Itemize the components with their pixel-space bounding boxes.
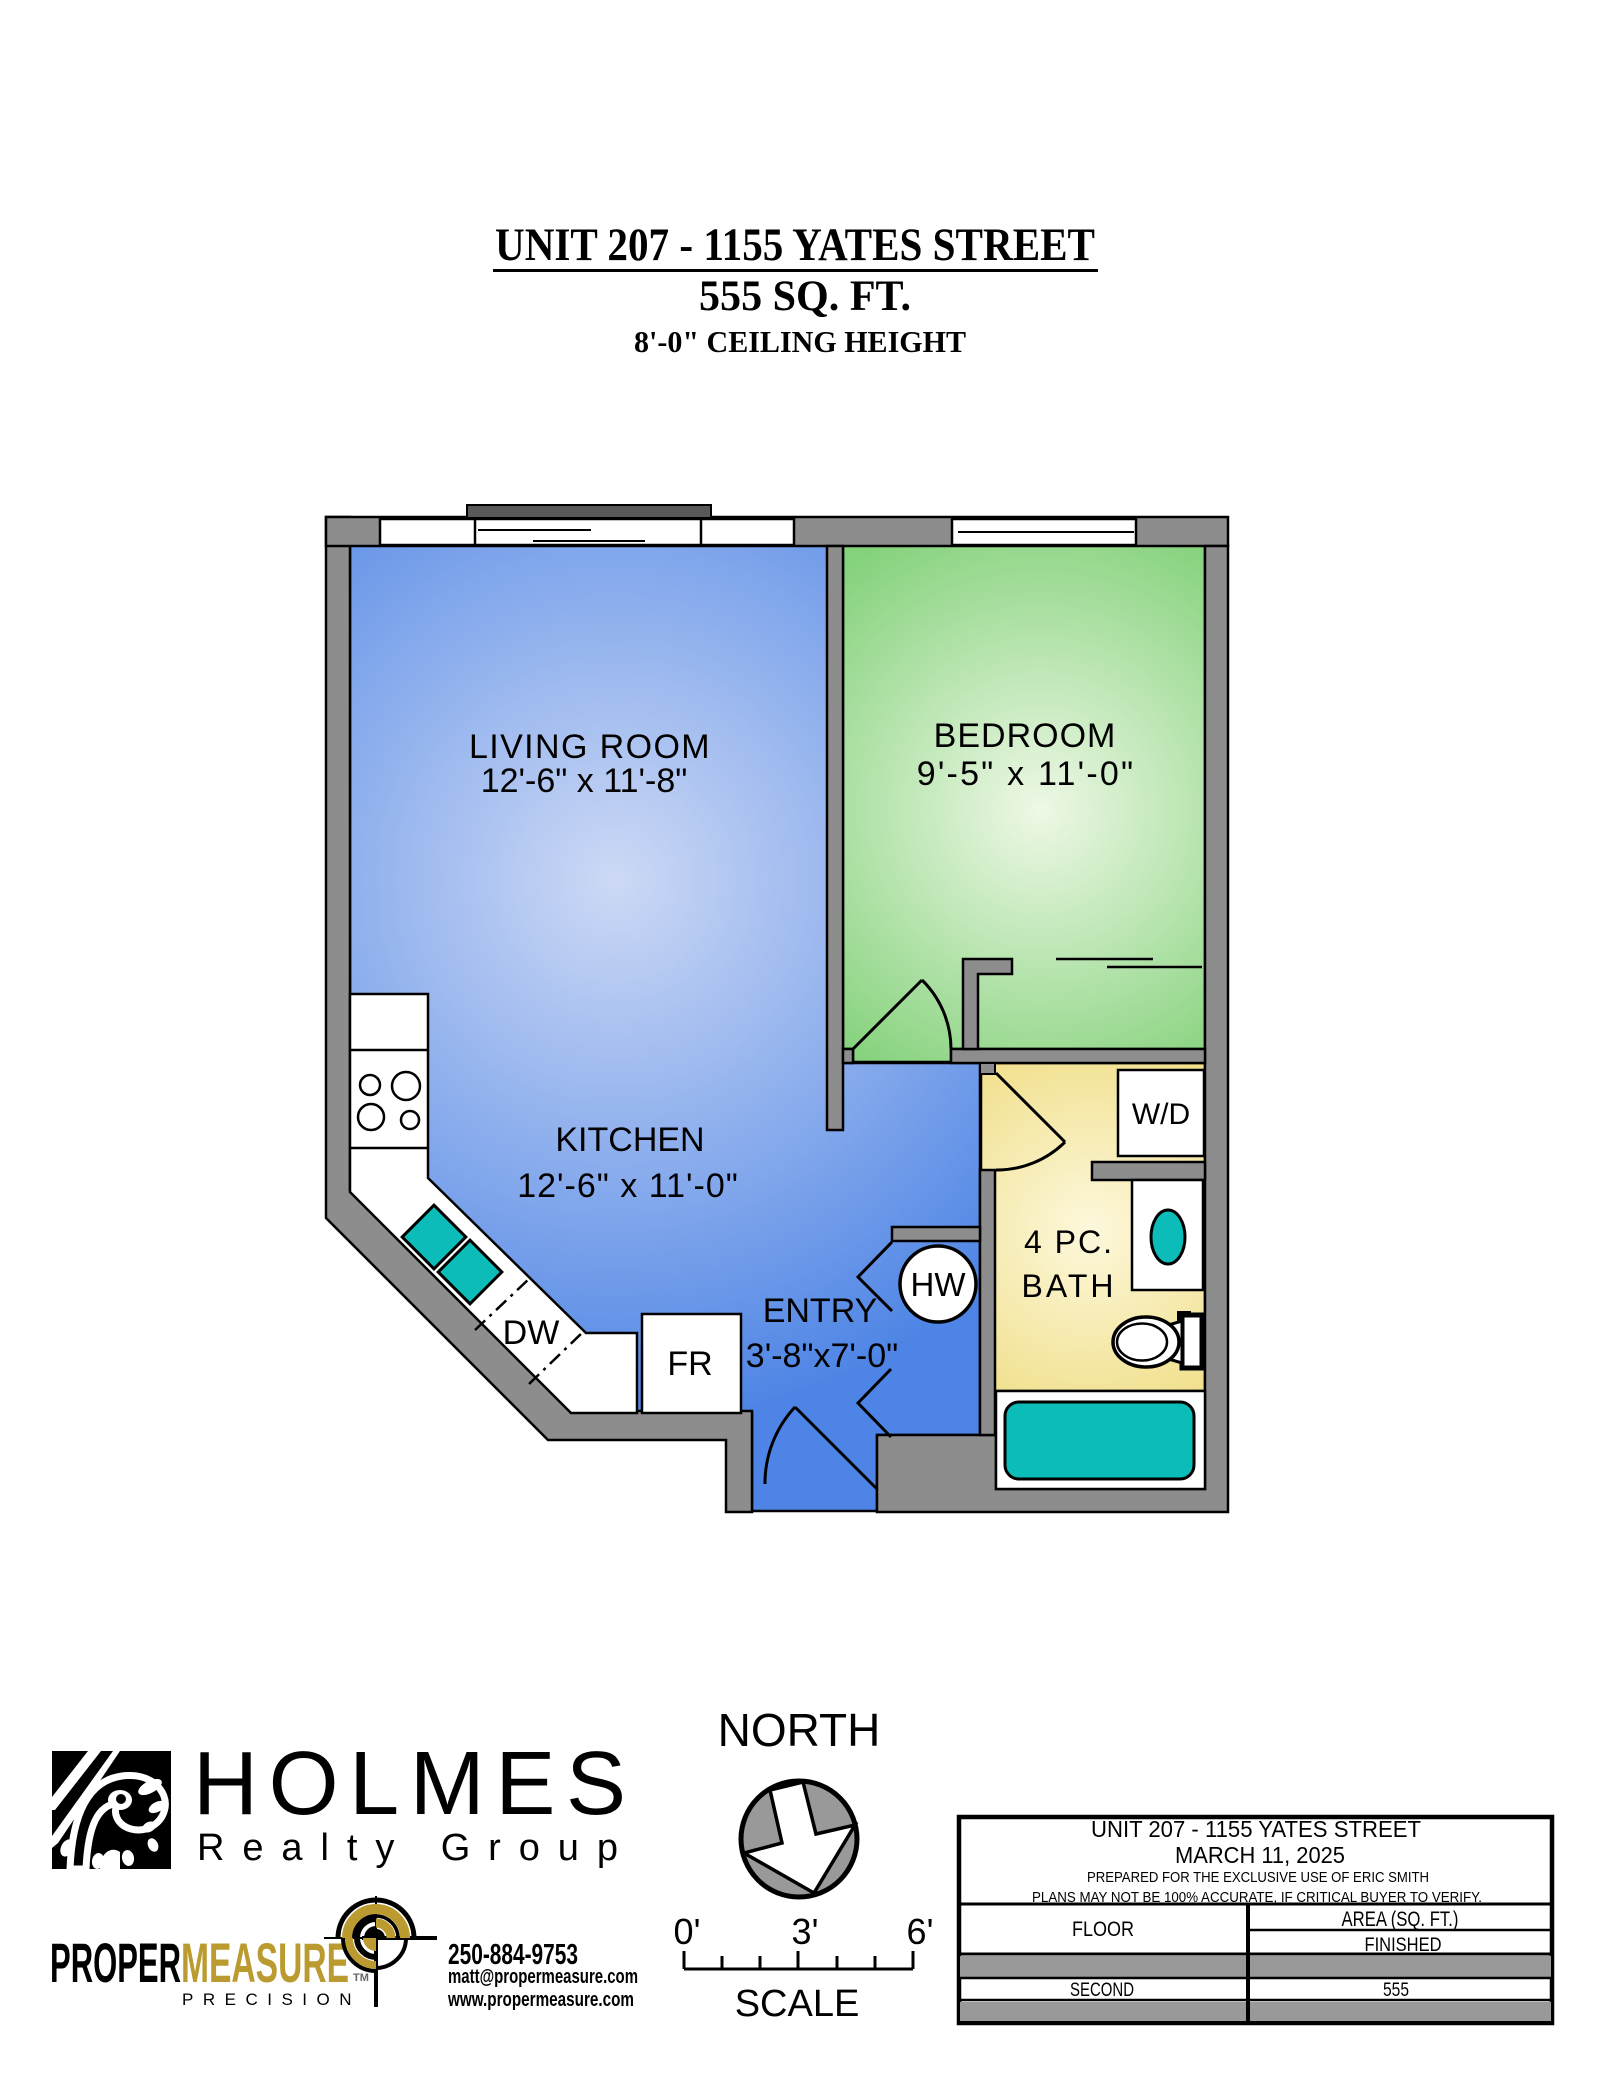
svg-text:W/D: W/D (1132, 1098, 1190, 1131)
svg-text:DW: DW (503, 1314, 560, 1352)
svg-text:SECOND: SECOND (1070, 1979, 1134, 2001)
svg-text:NORTH: NORTH (718, 1704, 881, 1756)
svg-text:KITCHEN: KITCHEN (555, 1121, 704, 1159)
svg-text:BEDROOM: BEDROOM (934, 717, 1117, 755)
svg-text:555: 555 (1383, 1979, 1409, 2001)
svg-text:0': 0' (674, 1911, 701, 1952)
svg-text:3': 3' (792, 1911, 819, 1952)
svg-text:MARCH 11, 2025: MARCH 11, 2025 (1175, 1842, 1345, 1868)
svg-text:4 PC.: 4 PC. (1024, 1224, 1114, 1260)
svg-text:8'-0" CEILING HEIGHT: 8'-0" CEILING HEIGHT (634, 324, 966, 359)
svg-text:AREA (SQ. FT.): AREA (SQ. FT.) (1342, 1908, 1459, 1931)
svg-text:matt@propermeasure.com: matt@propermeasure.com (448, 1966, 638, 1988)
svg-text:PREPARED FOR THE EXCLUSIVE USE: PREPARED FOR THE EXCLUSIVE USE OF ERIC S… (1087, 1870, 1429, 1886)
svg-text:PRECISION: PRECISION (182, 1990, 361, 2009)
svg-text:MEASURE: MEASURE (181, 1931, 349, 1994)
svg-text:FR: FR (667, 1345, 712, 1383)
svg-text:UNIT 207 - 1155 YATES STREET: UNIT 207 - 1155 YATES STREET (1091, 1816, 1421, 1842)
svg-text:9'-5" x 11'-0": 9'-5" x 11'-0" (917, 755, 1135, 793)
svg-text:www.propermeasure.com: www.propermeasure.com (447, 1989, 634, 2011)
svg-text:HOLMES: HOLMES (193, 1734, 626, 1834)
svg-text:BATH: BATH (1022, 1268, 1117, 1304)
svg-text:6': 6' (907, 1911, 934, 1952)
svg-text:PLANS MAY NOT BE 100% ACCURATE: PLANS MAY NOT BE 100% ACCURATE, IF CRITI… (1032, 1890, 1482, 1906)
svg-text:LIVING ROOM: LIVING ROOM (469, 728, 711, 766)
svg-text:UNIT 207 - 1155 YATES STREET: UNIT 207 - 1155 YATES STREET (495, 219, 1095, 271)
svg-text:PROPER: PROPER (50, 1931, 181, 1994)
svg-text:12'-6" x 11'-0": 12'-6" x 11'-0" (517, 1167, 739, 1205)
svg-text:ENTRY: ENTRY (763, 1292, 878, 1330)
svg-text:HW: HW (911, 1266, 967, 1303)
svg-text:FINISHED: FINISHED (1365, 1935, 1442, 1956)
svg-text:555 SQ. FT.: 555 SQ. FT. (699, 273, 911, 320)
svg-text:SCALE: SCALE (735, 1983, 860, 2025)
svg-text:3'-8"x7'-0": 3'-8"x7'-0" (746, 1337, 898, 1375)
svg-text:FLOOR: FLOOR (1072, 1918, 1134, 1941)
svg-text:TM: TM (353, 1972, 369, 1984)
svg-text:12'-6" x 11'-8": 12'-6" x 11'-8" (481, 762, 688, 800)
